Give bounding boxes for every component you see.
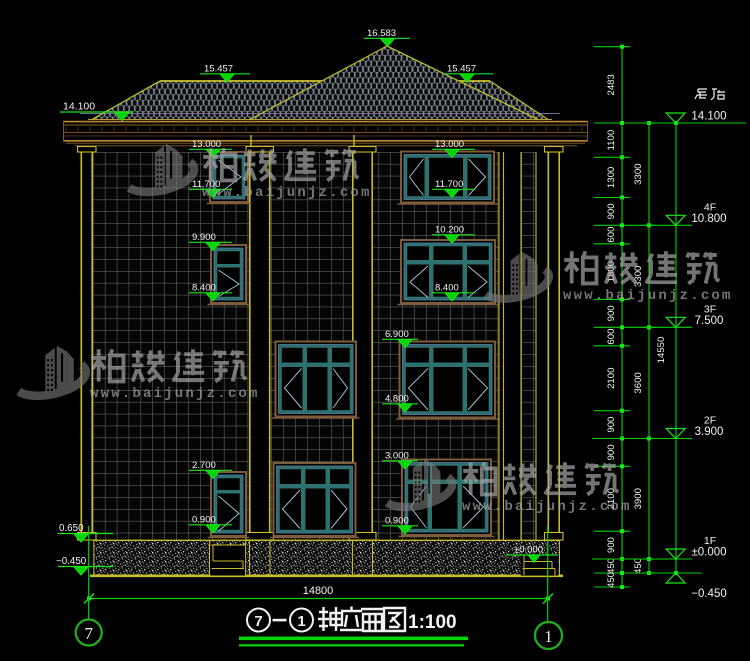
svg-text:www.baijunjz.com: www.baijunjz.com xyxy=(462,499,632,515)
svg-text:±0.000: ±0.000 xyxy=(691,547,726,559)
svg-text:2F: 2F xyxy=(704,415,716,427)
svg-text:www.baijunjz.com: www.baijunjz.com xyxy=(90,386,260,402)
svg-text:6.900: 6.900 xyxy=(385,329,409,340)
svg-text:1: 1 xyxy=(297,613,305,630)
svg-text:1300: 1300 xyxy=(606,167,617,188)
svg-text:900: 900 xyxy=(606,203,617,219)
svg-text:450: 450 xyxy=(606,572,617,588)
svg-text:7: 7 xyxy=(84,624,93,643)
svg-text:8.400: 8.400 xyxy=(192,283,216,294)
svg-text:600: 600 xyxy=(606,227,617,243)
svg-text:9.900: 9.900 xyxy=(192,232,216,243)
svg-text:13.000: 13.000 xyxy=(192,139,221,150)
svg-text:−0.450: −0.450 xyxy=(691,588,727,600)
svg-text:900: 900 xyxy=(606,444,617,460)
svg-text:3.000: 3.000 xyxy=(385,451,409,462)
svg-text:1:100: 1:100 xyxy=(408,612,457,633)
svg-text:3.900: 3.900 xyxy=(695,426,724,438)
svg-text:0.900: 0.900 xyxy=(385,516,409,527)
svg-text:900: 900 xyxy=(606,537,617,553)
svg-text:7.500: 7.500 xyxy=(695,315,724,327)
svg-text:−0.450: −0.450 xyxy=(56,556,87,567)
svg-text:4F: 4F xyxy=(704,201,716,213)
svg-text:900: 900 xyxy=(606,417,617,433)
svg-text:0.900: 0.900 xyxy=(192,515,216,526)
svg-text:1: 1 xyxy=(544,627,553,646)
svg-text:3300: 3300 xyxy=(633,163,644,184)
svg-text:14.100: 14.100 xyxy=(691,111,726,123)
svg-text:4.800: 4.800 xyxy=(385,394,409,405)
svg-text:450: 450 xyxy=(606,558,617,574)
svg-text:10.200: 10.200 xyxy=(435,225,464,236)
svg-text:15.457: 15.457 xyxy=(204,64,233,75)
svg-text:2483: 2483 xyxy=(606,74,617,95)
svg-text:1F: 1F xyxy=(704,535,716,547)
svg-text:1100: 1100 xyxy=(606,130,617,151)
svg-text:900: 900 xyxy=(606,305,617,321)
svg-text:14550: 14550 xyxy=(656,337,667,364)
svg-text:3F: 3F xyxy=(704,303,716,315)
svg-text:7: 7 xyxy=(254,613,262,630)
svg-text:3600: 3600 xyxy=(633,372,644,393)
svg-text:2100: 2100 xyxy=(606,368,617,389)
svg-text:11.700: 11.700 xyxy=(435,179,463,190)
svg-text:10.800: 10.800 xyxy=(691,213,726,225)
svg-text:14.100: 14.100 xyxy=(63,101,95,113)
svg-text:0.650: 0.650 xyxy=(59,523,84,534)
svg-text:www.baijunjz.com: www.baijunjz.com xyxy=(202,185,372,201)
svg-text:600: 600 xyxy=(606,329,617,345)
svg-text:14800: 14800 xyxy=(303,585,334,597)
svg-text:450: 450 xyxy=(633,558,644,574)
svg-text:15.457: 15.457 xyxy=(447,64,476,75)
svg-text:www.baijunjz.com: www.baijunjz.com xyxy=(563,288,733,304)
svg-text:±0.000: ±0.000 xyxy=(514,545,543,556)
svg-text:2.700: 2.700 xyxy=(192,460,216,471)
svg-text:16.583: 16.583 xyxy=(367,28,396,39)
svg-text:13.000: 13.000 xyxy=(435,139,464,150)
svg-text:3900: 3900 xyxy=(633,488,644,509)
svg-text:8.400: 8.400 xyxy=(435,283,459,294)
